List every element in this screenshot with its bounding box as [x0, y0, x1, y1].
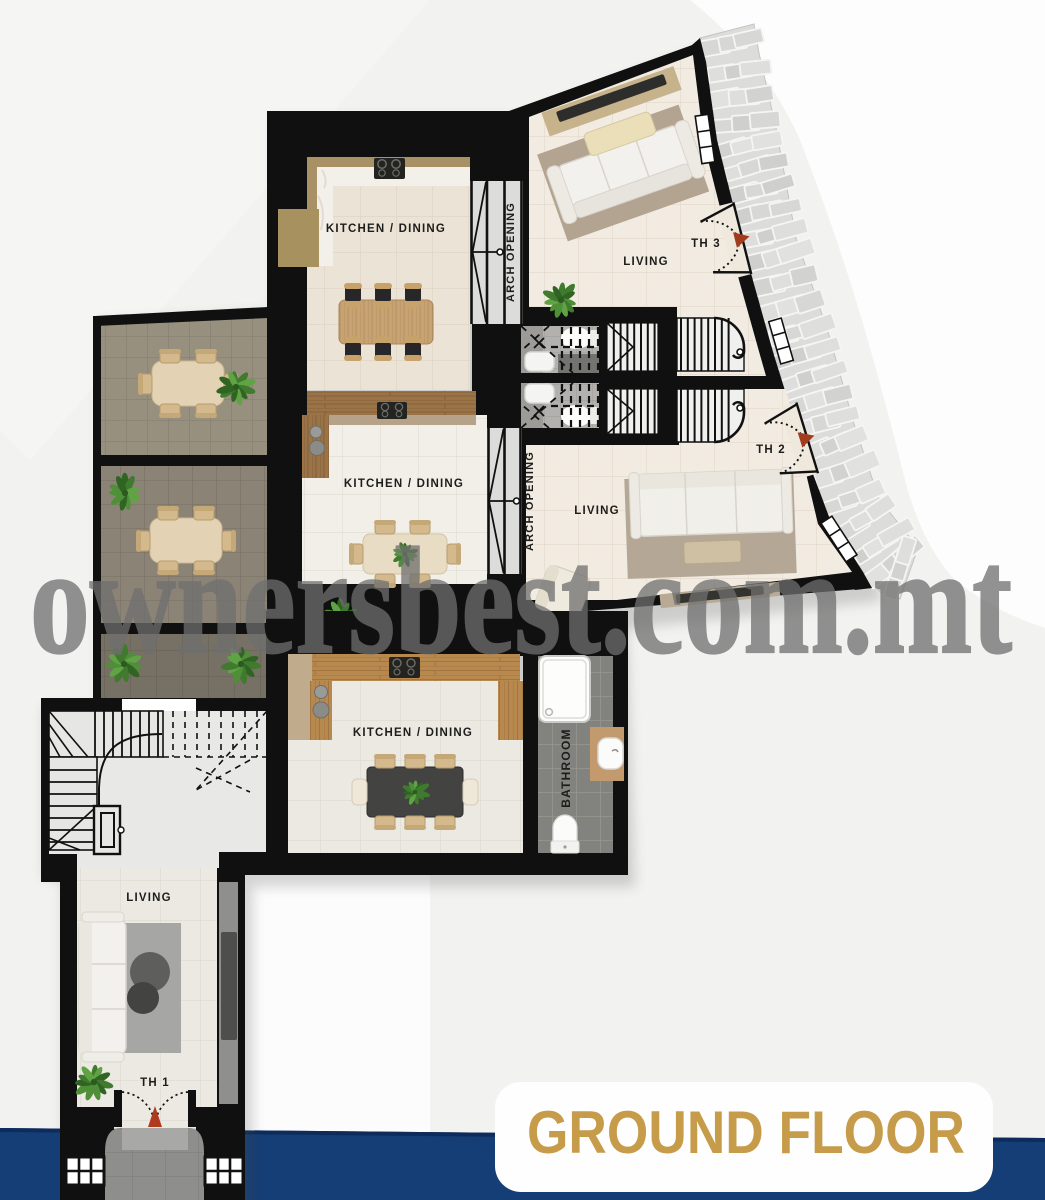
svg-text:LIVING: LIVING	[623, 256, 669, 268]
svg-text:TH 3: TH 3	[691, 238, 721, 250]
svg-text:LIVING: LIVING	[574, 505, 620, 517]
svg-text:ARCH OPENING: ARCH OPENING	[505, 202, 517, 302]
svg-text:TH 1: TH 1	[140, 1077, 170, 1089]
svg-text:TH 2: TH 2	[756, 444, 786, 456]
svg-text:KITCHEN / DINING: KITCHEN / DINING	[326, 223, 446, 235]
svg-text:KITCHEN / DINING: KITCHEN / DINING	[353, 727, 473, 739]
svg-text:LIVING: LIVING	[126, 892, 172, 904]
svg-text:KITCHEN / DINING: KITCHEN / DINING	[344, 478, 464, 490]
svg-text:BATHROOM: BATHROOM	[559, 728, 573, 807]
svg-text:GROUND FLOOR: GROUND FLOOR	[527, 1099, 965, 1166]
svg-text:ownersbest.com.mt: ownersbest.com.mt	[30, 517, 1012, 685]
